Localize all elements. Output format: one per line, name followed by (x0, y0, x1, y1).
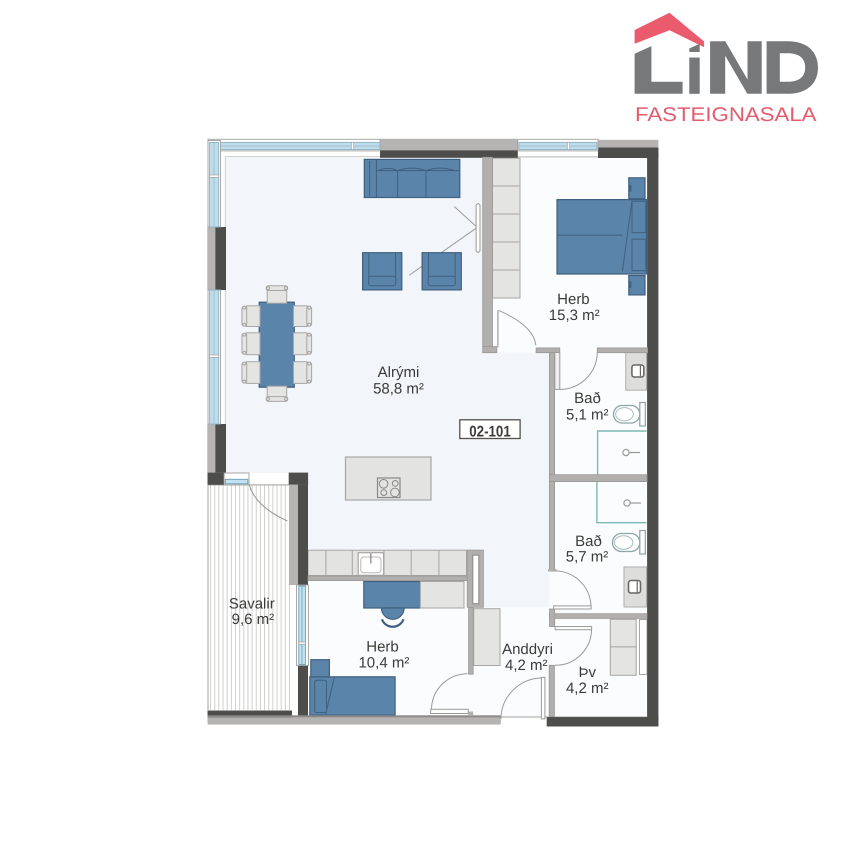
svg-text:Savalir: Savalir (229, 596, 275, 613)
svg-text:5,1 m²: 5,1 m² (566, 407, 609, 424)
svg-text:Herb: Herb (557, 291, 590, 308)
svg-text:4,2 m²: 4,2 m² (566, 680, 609, 697)
svg-text:FASTEIGNASALA: FASTEIGNASALA (635, 104, 817, 126)
svg-text:Anddyri: Anddyri (502, 641, 553, 658)
svg-text:Bað: Bað (575, 533, 602, 550)
svg-text:Þv: Þv (579, 664, 597, 681)
svg-text:9,6 m²: 9,6 m² (232, 611, 275, 628)
svg-text:02-101: 02-101 (469, 423, 511, 440)
svg-text:5,7 m²: 5,7 m² (566, 549, 609, 566)
svg-text:4,2 m²: 4,2 m² (505, 657, 548, 674)
svg-text:Bað: Bað (574, 390, 601, 407)
svg-text:Alrými: Alrými (378, 364, 420, 381)
svg-text:10,4 m²: 10,4 m² (358, 655, 409, 672)
svg-text:Herb: Herb (366, 639, 399, 656)
svg-text:58,8 m²: 58,8 m² (373, 381, 424, 398)
svg-text:15,3 m²: 15,3 m² (549, 307, 600, 324)
